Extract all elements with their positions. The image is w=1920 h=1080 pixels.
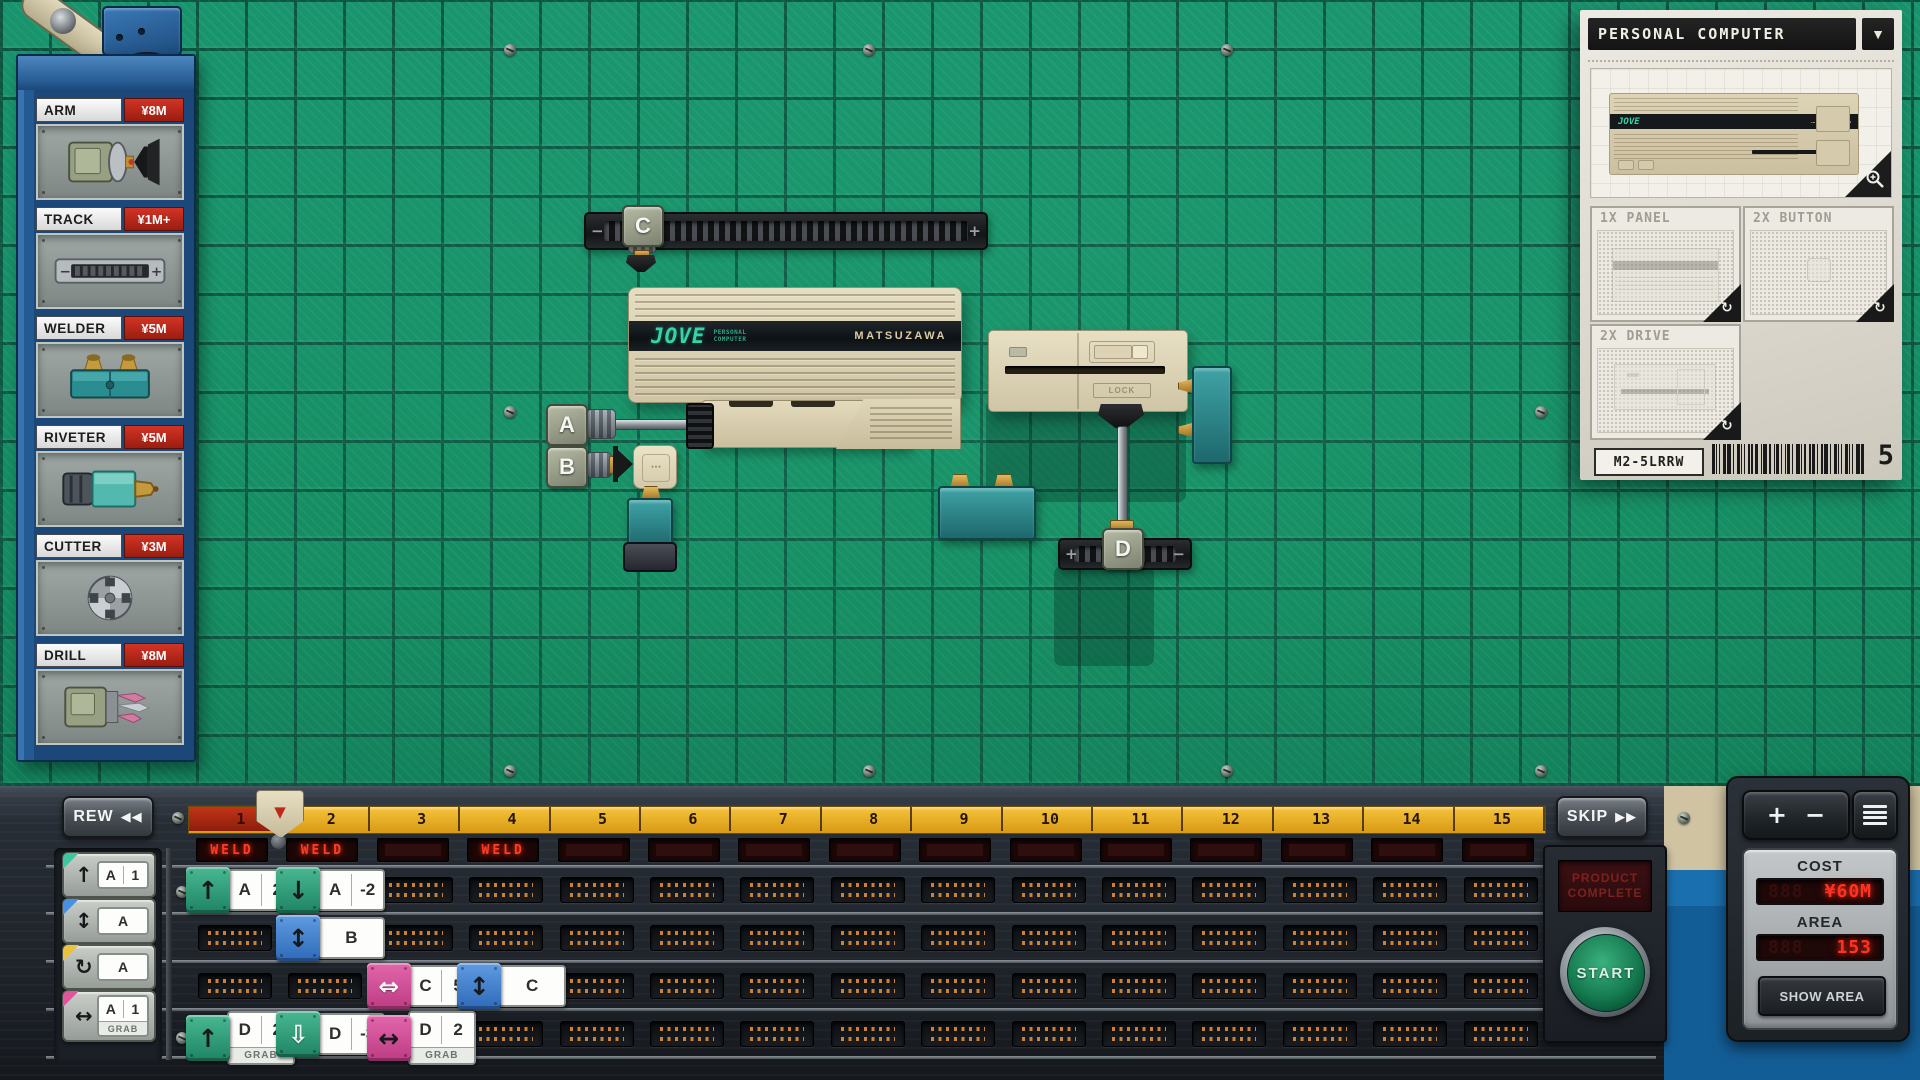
barcode-bar [1841, 444, 1842, 474]
program-slot-r3-c10[interactable] [1012, 973, 1086, 999]
program-slot-r4-c12[interactable] [1192, 1021, 1266, 1047]
chip-plate: D2GRAB [408, 1011, 476, 1065]
palette-chip-plate: A1 [97, 861, 149, 889]
chip-value: 1 [124, 997, 148, 1021]
menu-icon [1863, 803, 1887, 828]
program-slot-r3-c6[interactable] [650, 973, 724, 999]
deck-screw [1678, 812, 1690, 824]
start-button-ring: START [1560, 927, 1650, 1017]
shop-item-price: ¥5M [124, 316, 184, 340]
program-slot-r3-c11[interactable] [1102, 973, 1176, 999]
barcode-bar [1737, 444, 1740, 474]
barcode-bar [1716, 444, 1717, 474]
barcode-bar [1845, 444, 1848, 474]
program-chip-C-r3-c4[interactable]: ↕C [457, 963, 566, 1009]
program-slot-r1-c10[interactable] [1012, 877, 1086, 903]
shop-item-label: RIVETER [36, 425, 122, 449]
program-slot-r2-c11[interactable] [1102, 925, 1176, 951]
playhead-marker-icon: ▼ [274, 803, 286, 821]
barcode-bar [1792, 444, 1793, 474]
display-line: PRODUCT [1572, 871, 1638, 886]
program-slot-r4-c10[interactable] [1012, 1021, 1086, 1047]
chip-letter: D [410, 1013, 442, 1047]
riveter-base [623, 542, 677, 572]
program-slot-r4-c9[interactable] [921, 1021, 995, 1047]
machine-d-rod [1117, 426, 1128, 534]
barcode-bar [1727, 444, 1731, 474]
plate-values: A-2 [319, 871, 383, 909]
shop-item-header: CUTTER¥3M [36, 534, 184, 558]
welder-horizontal[interactable] [938, 486, 1036, 540]
control-pod: + − COST ¥60M AREA 153 SHOW AREA [1726, 776, 1910, 1042]
arrow-icon: ↕ [469, 974, 490, 999]
program-slot-r4-c13[interactable] [1283, 1021, 1357, 1047]
barcode-bar [1801, 444, 1802, 474]
chip-letter: C [500, 967, 564, 1005]
barcode-bar [1755, 444, 1758, 474]
chip-letter: A [99, 909, 147, 933]
shop-item-track[interactable]: TRACK¥1M+−+ [36, 207, 184, 309]
svg-text:−: − [59, 264, 70, 280]
arrow-icon: ↕ [288, 926, 309, 951]
area-display: 153 [1756, 934, 1884, 961]
quantity-value: 5 [1878, 440, 1894, 471]
rewind-icon: ◀◀ [121, 810, 143, 825]
button-part[interactable]: ··· [633, 445, 677, 489]
menu-button[interactable] [1852, 790, 1898, 840]
track-plus-sign: + [968, 222, 981, 240]
program-slot-r3-c1[interactable] [198, 973, 272, 999]
floor-screw [504, 765, 516, 777]
shop-item-cutter[interactable]: CUTTER¥3M [36, 534, 184, 636]
drive-slot [1005, 366, 1165, 374]
panel-notch [729, 401, 773, 407]
start-button[interactable]: START [1567, 934, 1645, 1012]
arrow-icon: ↻ [75, 957, 93, 978]
cost-display: ¥60M [1756, 878, 1884, 905]
barcode [1712, 444, 1866, 474]
palette-chip-plate: A [97, 953, 149, 981]
program-slot-r1-c11[interactable] [1102, 877, 1176, 903]
palette-chip-1[interactable]: ↑A1 [62, 852, 156, 898]
chip-arrow-block: ⇔ [367, 963, 411, 1009]
program-slot-r1-c4[interactable] [469, 877, 543, 903]
rotate-icon[interactable]: ↻ [1703, 402, 1741, 440]
show-area-button[interactable]: SHOW AREA [1758, 976, 1886, 1016]
barcode-bar [1804, 444, 1805, 474]
barcode-bar [1787, 444, 1790, 474]
blueprint-card: PERSONAL COMPUTER ▼ JOVEMATSUZAWA 1X PAN… [1580, 10, 1902, 480]
welder-vertical[interactable] [1192, 366, 1232, 464]
chevron-down-icon[interactable]: ▼ [1862, 18, 1894, 50]
program-slot-r4-c4[interactable] [469, 1021, 543, 1047]
led-cell-10 [1010, 838, 1082, 862]
model-code: M2-5LRRW [1594, 448, 1704, 476]
product-complete-display: PRODUCT COMPLETE [1558, 860, 1652, 912]
machine-c-label[interactable]: C [622, 205, 664, 247]
chip-arrow-block: ↕ [276, 915, 320, 961]
barcode-bar [1824, 444, 1828, 474]
led-cell-11 [1100, 838, 1172, 862]
rod-coupling [686, 403, 714, 449]
program-slot-r2-c7[interactable] [740, 925, 814, 951]
subpart-ghost-button [1807, 258, 1831, 282]
chip-plate: A-2 [317, 869, 385, 911]
shop-item-label: DRILL [36, 643, 122, 667]
barcode-bar [1748, 444, 1749, 474]
ruler-segment-8[interactable]: 8 [822, 807, 912, 831]
program-slot-r1-c7[interactable] [740, 877, 814, 903]
shop-item-arm[interactable]: ARM¥8M [36, 98, 184, 200]
led-cell-13 [1281, 838, 1353, 862]
program-slot-r1-c3[interactable] [379, 877, 453, 903]
ruler-segment-4[interactable]: 4 [460, 807, 550, 831]
program-slot-r1-c8[interactable] [831, 877, 905, 903]
shop-item-price: ¥1M+ [124, 207, 184, 231]
ruler-segment-11[interactable]: 11 [1093, 807, 1183, 831]
subpart-label: 2X DRIVE [1600, 329, 1671, 344]
sequencer-deck: REW ◀◀ 123456789101112131415 ▼ SKIP ▶▶ P… [0, 786, 1664, 1080]
floor-screw [1221, 765, 1233, 777]
chip-letter: A [99, 955, 147, 979]
shop-item-list: ARM¥8MTRACK¥1M+−+WELDER¥5MRIVETER¥5MCUTT… [36, 98, 184, 752]
plate-values: B [319, 919, 383, 957]
led-cell-2: WELD [286, 838, 358, 862]
shop-item-header: WELDER¥5M [36, 316, 184, 340]
program-slot-r1-c5[interactable] [560, 877, 634, 903]
barcode-bar [1812, 444, 1815, 474]
rewind-label: REW [73, 808, 113, 826]
palette-chip-4[interactable]: ↔A1GRAB [62, 990, 156, 1042]
brand-sub: PERSONALCOMPUTER [714, 329, 747, 343]
program-slot-r3-c12[interactable] [1192, 973, 1266, 999]
zoom-buttons[interactable]: + − [1742, 790, 1850, 840]
barcode-bar [1741, 444, 1742, 474]
barcode-bar [1809, 444, 1812, 474]
magnifier-icon[interactable] [1845, 151, 1891, 197]
machine-a-label[interactable]: A [546, 404, 588, 446]
shop-item-header: ARM¥8M [36, 98, 184, 122]
grab-label: GRAB [410, 1047, 474, 1063]
floor-screw [1221, 44, 1233, 56]
button-part-face: ··· [642, 454, 670, 482]
arrow-icon: ⇔ [378, 974, 399, 999]
barcode-bar [1821, 444, 1822, 474]
welder-part-icon [36, 342, 184, 418]
shop-item-price: ¥8M [124, 98, 184, 122]
program-slot-r2-c10[interactable] [1012, 925, 1086, 951]
program-slot-r1-c13[interactable] [1283, 877, 1357, 903]
minus-icon[interactable]: − [1805, 801, 1825, 829]
start-console: PRODUCT COMPLETE START [1543, 845, 1667, 1043]
chassis-ridges-bottom [635, 358, 955, 398]
brand-logo: JOVE [651, 324, 706, 348]
deck-divider [166, 848, 172, 1060]
machine-a-body [586, 409, 616, 439]
rewind-button[interactable]: REW ◀◀ [62, 796, 154, 838]
program-slot-r2-c1[interactable] [198, 925, 272, 951]
machine-b-label[interactable]: B [546, 446, 588, 488]
barcode-bar [1856, 444, 1860, 474]
ruler-segment-5[interactable]: 5 [551, 807, 641, 831]
riveter-part-icon [36, 451, 184, 527]
program-slot-r3-c2[interactable] [288, 973, 362, 999]
chip-letter: A [99, 997, 123, 1021]
barcode-bar [1796, 444, 1800, 474]
floor-screw [1535, 406, 1547, 418]
program-slot-r4-c11[interactable] [1102, 1021, 1176, 1047]
chip-value: -2 [352, 871, 384, 909]
meter-panel: COST ¥60M AREA 153 SHOW AREA [1742, 848, 1898, 1030]
palette-chip-plate: A1GRAB [97, 995, 149, 1037]
program-slot-r2-c5[interactable] [560, 925, 634, 951]
chip-arrow-block: ↓ [276, 867, 320, 913]
barcode-bar [1849, 444, 1850, 474]
skip-button[interactable]: SKIP ▶▶ [1556, 796, 1648, 838]
shop-item-label: ARM [36, 98, 122, 122]
chip-arrow-block: ↑ [186, 1015, 230, 1061]
program-slot-r2-c9[interactable] [921, 925, 995, 951]
program-chip-B-r2-c2[interactable]: ↕B [276, 915, 385, 961]
plate-values: D2 [410, 1013, 474, 1047]
barcode-bar [1761, 444, 1762, 474]
drive-part[interactable]: LOCK [988, 330, 1188, 412]
palette-chip-2[interactable]: ↕A [62, 898, 156, 944]
chip-letter: A [319, 871, 351, 909]
program-slot-r2-c8[interactable] [831, 925, 905, 951]
barcode-bar [1723, 444, 1726, 474]
palette-chip-plate: A [97, 907, 149, 935]
led-cell-7 [738, 838, 810, 862]
program-slot-r2-c6[interactable] [650, 925, 724, 951]
subpart-card-button: 2X BUTTON ↻ [1743, 206, 1894, 322]
program-slot-r2-c12[interactable] [1192, 925, 1266, 951]
product-preview: JOVEMATSUZAWA [1590, 68, 1892, 198]
program-slot-r3-c14[interactable] [1373, 973, 1447, 999]
program-slot-r4-c6[interactable] [650, 1021, 724, 1047]
program-slot-r2-c15[interactable] [1464, 925, 1538, 951]
floor-screw [1535, 765, 1547, 777]
drive-lock-label: LOCK [1093, 383, 1151, 398]
plate-values: C [500, 967, 564, 1005]
led-cell-3 [377, 838, 449, 862]
shop-item-header: DRILL¥8M [36, 643, 184, 667]
chip-letter: C [410, 967, 442, 1005]
program-slot-r3-c7[interactable] [740, 973, 814, 999]
program-slot-r2-c4[interactable] [469, 925, 543, 951]
plate-values: A [99, 955, 147, 979]
dispenser-joint [50, 8, 76, 34]
chip-plate: B [317, 917, 385, 959]
chip-letter: A [99, 863, 123, 887]
led-cell-14 [1371, 838, 1443, 862]
plus-icon[interactable]: + [1767, 801, 1787, 829]
ruler-segment-10[interactable]: 10 [1003, 807, 1093, 831]
plate-values: A [99, 909, 147, 933]
program-slot-r1-c12[interactable] [1192, 877, 1266, 903]
chip-letter: A [229, 871, 261, 909]
chip-value: 1 [124, 863, 148, 887]
svg-text:+: + [151, 264, 162, 280]
led-cell-12 [1190, 838, 1262, 862]
barcode-bar [1744, 444, 1745, 474]
led-cell-9 [919, 838, 991, 862]
program-slot-r2-c14[interactable] [1373, 925, 1447, 951]
barcode-bar [1774, 444, 1775, 474]
program-chip-A-r1-c2[interactable]: ↓A-2 [276, 867, 385, 913]
chip-letter: D [229, 1013, 261, 1047]
shop-item-riveter[interactable]: RIVETER¥5M [36, 425, 184, 527]
program-slot-r4-c15[interactable] [1464, 1021, 1538, 1047]
chip-arrow-block: ↕ [457, 963, 501, 1009]
cutter-part-icon [36, 560, 184, 636]
arrow-icon: ⇩ [288, 1022, 309, 1047]
area-label: AREA [1744, 914, 1896, 931]
drill-part-icon [36, 669, 184, 745]
program-chip-D-r4-c3[interactable]: ↔D2GRAB [367, 1011, 476, 1065]
barcode-bar [1834, 444, 1837, 474]
product-drawing: JOVEMATSUZAWA [1609, 93, 1859, 175]
display-line: COMPLETE [1568, 886, 1643, 901]
parts-shop-tray: ARM¥8MTRACK¥1M+−+WELDER¥5MRIVETER¥5MCUTT… [16, 54, 196, 762]
ruler-segment-14[interactable]: 14 [1364, 807, 1454, 831]
shop-item-label: CUTTER [36, 534, 122, 558]
program-slot-r4-c7[interactable] [740, 1021, 814, 1047]
program-slot-r3-c13[interactable] [1283, 973, 1357, 999]
rotate-icon[interactable]: ↻ [1856, 284, 1894, 322]
program-slot-r4-c8[interactable] [831, 1021, 905, 1047]
program-slot-r4-c5[interactable] [560, 1021, 634, 1047]
track-minus-sign: − [1172, 545, 1185, 563]
chip-arrow-block: ↑ [186, 867, 230, 913]
led-cell-15 [1462, 838, 1534, 862]
drive-led [1009, 347, 1027, 357]
machine-d-label[interactable]: D [1102, 528, 1144, 570]
ruler-segment-12[interactable]: 12 [1183, 807, 1273, 831]
arm-part-icon [36, 124, 184, 200]
subpart-card-drive: 2X DRIVE ↻ [1590, 324, 1741, 440]
program-slot-r4-c14[interactable] [1373, 1021, 1447, 1047]
program-slot-r1-c14[interactable] [1373, 877, 1447, 903]
ruler-segment-15[interactable]: 15 [1455, 807, 1545, 831]
barcode-bar [1817, 444, 1818, 474]
barcode-bar [1830, 444, 1831, 474]
subpart-ghost-drive [1614, 364, 1716, 410]
ruler-segment-3[interactable]: 3 [370, 807, 460, 831]
arrow-icon: ↓ [288, 878, 309, 903]
barcode-bar [1861, 444, 1864, 474]
palette-chip-3[interactable]: ↻A [62, 944, 156, 990]
riveter-body[interactable] [627, 498, 673, 548]
barcode-bar [1719, 444, 1720, 474]
floor-screw [863, 765, 875, 777]
arrow-icon: ↔ [75, 1006, 93, 1027]
blueprint-title[interactable]: PERSONAL COMPUTER [1588, 18, 1856, 50]
drive-eject-button [1089, 341, 1155, 363]
machine-b-suction-cup [617, 449, 633, 479]
chassis-ridges-top [635, 294, 955, 318]
ruler-segment-6[interactable]: 6 [641, 807, 731, 831]
ruler-segment-7[interactable]: 7 [731, 807, 821, 831]
floor-screw [504, 406, 516, 418]
shop-item-price: ¥3M [124, 534, 184, 558]
led-cell-8 [829, 838, 901, 862]
floor-recess-zone [1054, 566, 1154, 666]
ruler-segment-13[interactable]: 13 [1274, 807, 1364, 831]
program-slot-r2-c3[interactable] [379, 925, 453, 951]
rotate-icon[interactable]: ↻ [1703, 284, 1741, 322]
program-slot-r1-c6[interactable] [650, 877, 724, 903]
barcode-bar [1852, 444, 1853, 474]
deck-screw [172, 812, 184, 824]
arrow-icon: ↑ [198, 878, 219, 903]
barcode-bar [1781, 444, 1782, 474]
barcode-bar [1769, 444, 1770, 474]
barcode-bar [1763, 444, 1767, 474]
ruler-segment-9[interactable]: 9 [912, 807, 1002, 831]
product-chassis[interactable]: JOVE PERSONALCOMPUTER MATSUZAWA [628, 287, 962, 403]
cost-label: COST [1744, 858, 1896, 875]
program-slot-r1-c15[interactable] [1464, 877, 1538, 903]
arrow-icon: ↑ [198, 1026, 219, 1051]
dispenser-head [102, 6, 182, 56]
shop-item-header: TRACK¥1M+ [36, 207, 184, 231]
subpart-label: 1X PANEL [1600, 211, 1671, 226]
program-slot-r2-c13[interactable] [1283, 925, 1357, 951]
maker-label: MATSUZAWA [854, 330, 947, 342]
machine-a-rod [605, 419, 691, 430]
chassis-brand-stripe: JOVE PERSONALCOMPUTER MATSUZAWA [629, 321, 961, 351]
plate-values: A1 [99, 997, 147, 1021]
chip-value: 2 [442, 1013, 474, 1047]
program-slot-r3-c9[interactable] [921, 973, 995, 999]
shop-item-welder[interactable]: WELDER¥5M [36, 316, 184, 418]
skip-label: SKIP [1567, 808, 1608, 826]
chip-plate: C [498, 965, 566, 1007]
barcode-bar [1776, 444, 1779, 474]
floor-screw [504, 44, 516, 56]
shop-item-header: RIVETER¥5M [36, 425, 184, 449]
track-plus-sign: + [1065, 545, 1078, 563]
shop-item-label: WELDER [36, 316, 122, 340]
arrow-icon: ↕ [75, 911, 93, 932]
game-screen: − + C JOVE PERSONALCOMPUTER MATSUZAWA A … [0, 0, 1920, 1080]
program-slot-r1-c9[interactable] [921, 877, 995, 903]
program-slot-r3-c8[interactable] [831, 973, 905, 999]
chip-letter: B [319, 919, 383, 957]
perforation [1588, 60, 1894, 62]
panel-notch [791, 401, 835, 407]
skip-icon: ▶▶ [1615, 810, 1637, 825]
chip-arrow-block: ↔ [367, 1015, 411, 1061]
timeline-ruler[interactable]: 123456789101112131415 [188, 806, 1546, 834]
shop-item-label: TRACK [36, 207, 122, 231]
arrow-icon: ↔ [378, 1026, 399, 1051]
subpart-label: 2X BUTTON [1753, 211, 1832, 226]
grab-label: GRAB [99, 1021, 147, 1035]
shop-item-drill[interactable]: DRILL¥8M [36, 643, 184, 745]
program-slot-r3-c5[interactable] [560, 973, 634, 999]
subpart-card-panel: 1X PANEL ↻ [1590, 206, 1741, 322]
barcode-bar [1785, 444, 1786, 474]
chip-arrow-block: ⇩ [276, 1011, 320, 1057]
plate-values: A1 [99, 863, 147, 887]
shop-item-price: ¥5M [124, 425, 184, 449]
barcode-bar [1733, 444, 1734, 474]
program-slot-r3-c15[interactable] [1464, 973, 1538, 999]
barcode-bar [1838, 444, 1839, 474]
led-cell-6 [648, 838, 720, 862]
